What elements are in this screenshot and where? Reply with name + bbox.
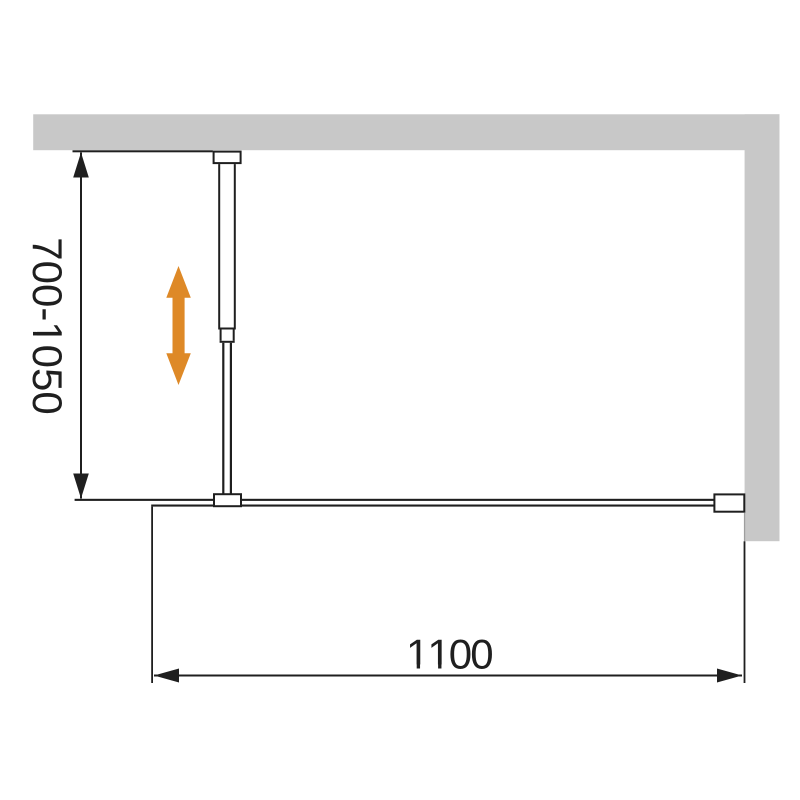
svg-text:0: 0 — [449, 631, 472, 678]
svg-text:700-1050: 700-1050 — [24, 237, 71, 415]
svg-text:1: 1 — [427, 631, 450, 678]
svg-text:0: 0 — [470, 631, 493, 678]
svg-text:1: 1 — [406, 631, 429, 678]
